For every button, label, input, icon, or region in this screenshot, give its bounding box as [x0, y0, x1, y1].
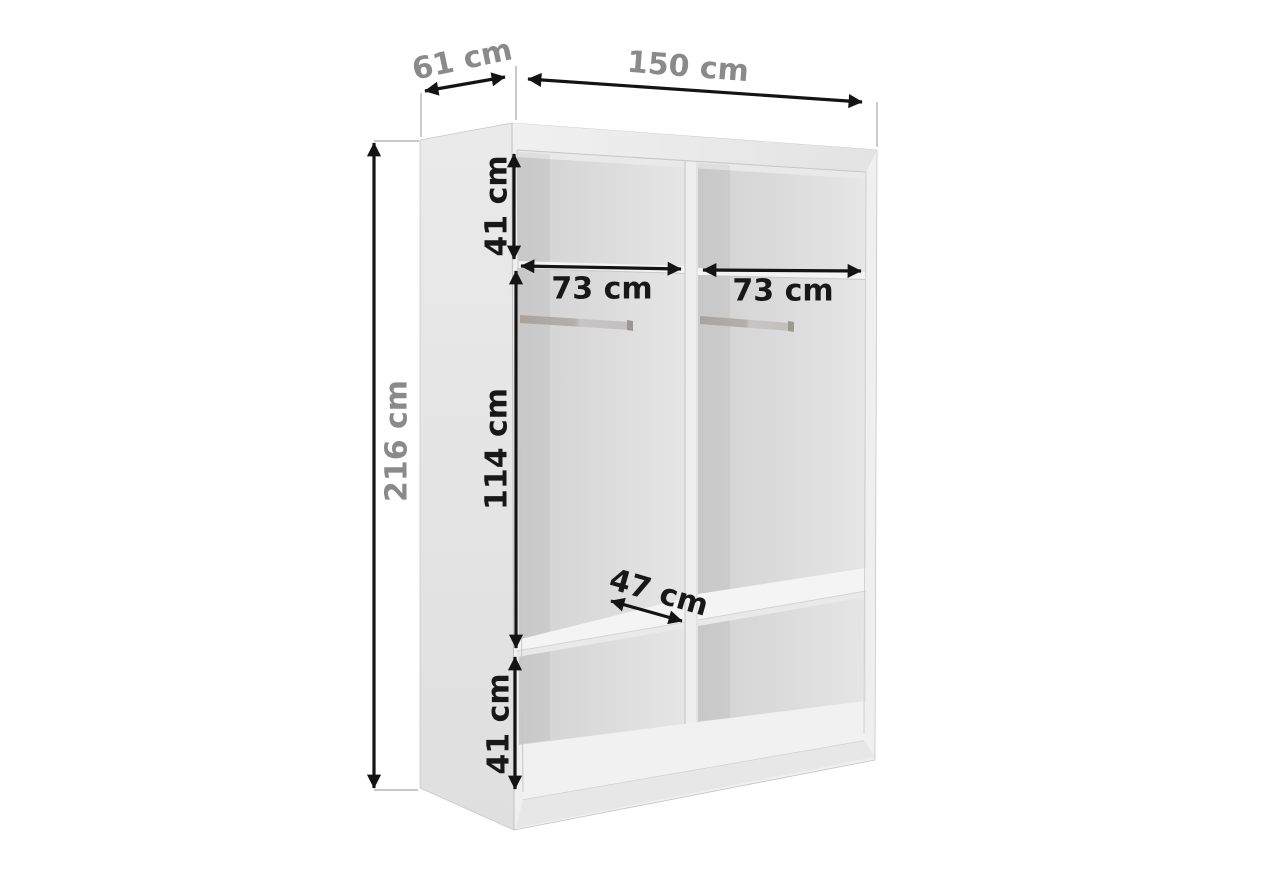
dimension-depth: 61 cm [409, 32, 515, 91]
right-compartment-label: 73 cm [732, 274, 833, 309]
dimension-width: 150 cm [528, 45, 862, 102]
dimension-bottom-section: 41 cm [482, 657, 517, 789]
top-section-label: 41 cm [480, 155, 515, 256]
width-label: 150 cm [626, 45, 750, 89]
hanging-section-label: 114 cm [480, 388, 515, 510]
diagram-canvas: 216 cm 61 cm 150 cm 41 cm 73 cm 73 cm [0, 0, 1280, 880]
height-label: 216 cm [380, 380, 415, 502]
interior-shadow-right [698, 163, 730, 721]
bottom-section-label: 41 cm [482, 673, 517, 774]
dimension-height: 216 cm [374, 143, 415, 788]
dimension-top-section: 41 cm [480, 154, 515, 259]
rail-end-cap [627, 320, 633, 331]
center-partition [685, 160, 697, 724]
rail-end-cap [788, 321, 794, 332]
left-compartment-label: 73 cm [551, 272, 652, 307]
wardrobe-dimension-diagram: 216 cm 61 cm 150 cm 41 cm 73 cm 73 cm [0, 0, 1280, 880]
